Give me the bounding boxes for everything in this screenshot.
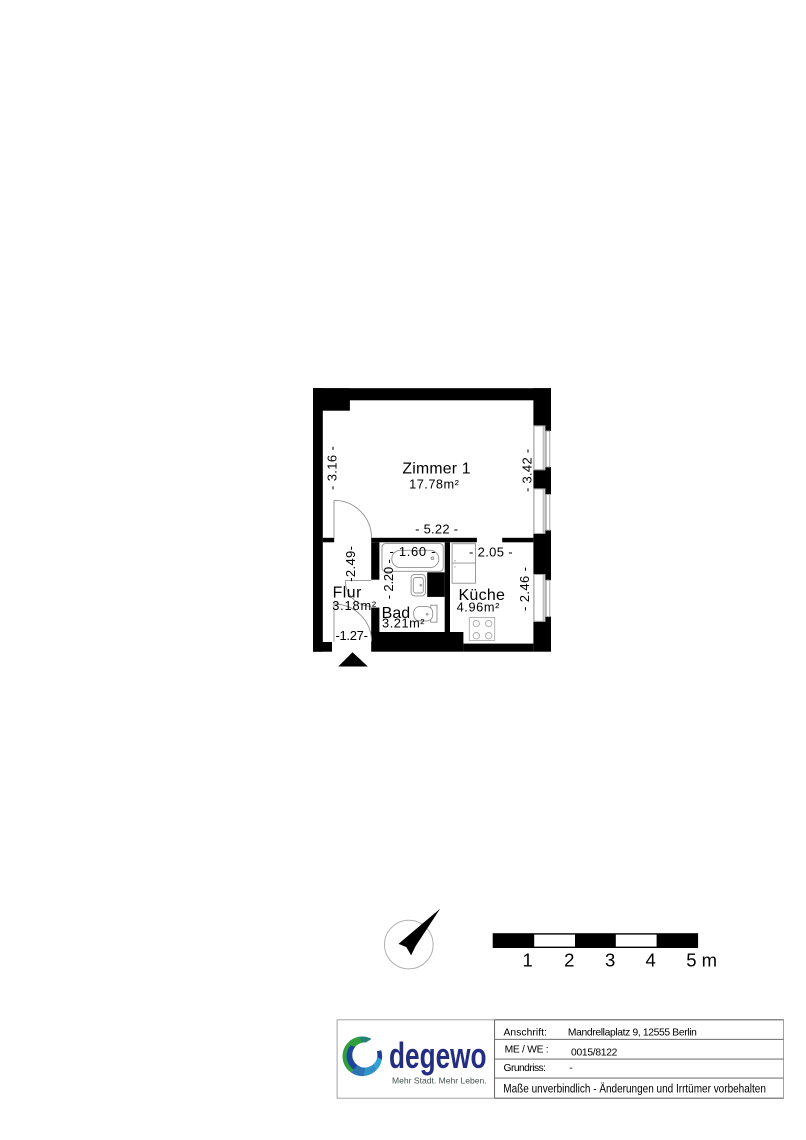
svg-text:Mehr Stadt. Mehr Leben.: Mehr Stadt. Mehr Leben. xyxy=(392,1076,487,1086)
svg-text:1: 1 xyxy=(522,950,532,971)
svg-text:m: m xyxy=(702,950,717,971)
svg-text:ME / WE :: ME / WE : xyxy=(505,1045,549,1056)
svg-text:degewo: degewo xyxy=(389,1035,487,1076)
svg-text:Maße unverbindlich - Änderunge: Maße unverbindlich - Änderungen und Irrt… xyxy=(503,1081,766,1095)
svg-text:2: 2 xyxy=(564,950,574,971)
svg-text:17.78m²: 17.78m² xyxy=(409,476,459,491)
svg-text:3.21m²: 3.21m² xyxy=(382,616,425,631)
svg-text:3.18m²: 3.18m² xyxy=(332,598,377,613)
svg-text:Zimmer 1: Zimmer 1 xyxy=(402,461,470,478)
svg-text:Anschrift:: Anschrift: xyxy=(504,1028,548,1039)
svg-text:- 2.46 -: - 2.46 - xyxy=(517,567,532,611)
svg-text:- 1.60 -: - 1.60 - xyxy=(390,544,436,559)
svg-text:Grundriss:: Grundriss: xyxy=(504,1063,547,1074)
svg-text:3: 3 xyxy=(605,950,615,971)
svg-text:Mandrellaplatz 9, 12555 Berlin: Mandrellaplatz 9, 12555 Berlin xyxy=(568,1028,697,1039)
svg-text:4.96m²: 4.96m² xyxy=(457,600,501,615)
svg-text:4: 4 xyxy=(645,950,655,971)
svg-text:- 2.05 -: - 2.05 - xyxy=(469,545,513,560)
svg-text:0015/8122: 0015/8122 xyxy=(571,1047,618,1058)
svg-text:-1.27-: -1.27- xyxy=(335,628,368,643)
svg-text:-2.49-: -2.49- xyxy=(343,546,358,582)
svg-text:5: 5 xyxy=(686,950,696,971)
svg-text:-: - xyxy=(569,1063,572,1074)
svg-text:- 3.16 -: - 3.16 - xyxy=(324,446,339,490)
svg-text:- 5.22 -: - 5.22 - xyxy=(415,521,458,536)
svg-text:- 2.20 -: - 2.20 - xyxy=(381,559,396,599)
svg-text:- 3.42 -: - 3.42 - xyxy=(519,449,534,492)
